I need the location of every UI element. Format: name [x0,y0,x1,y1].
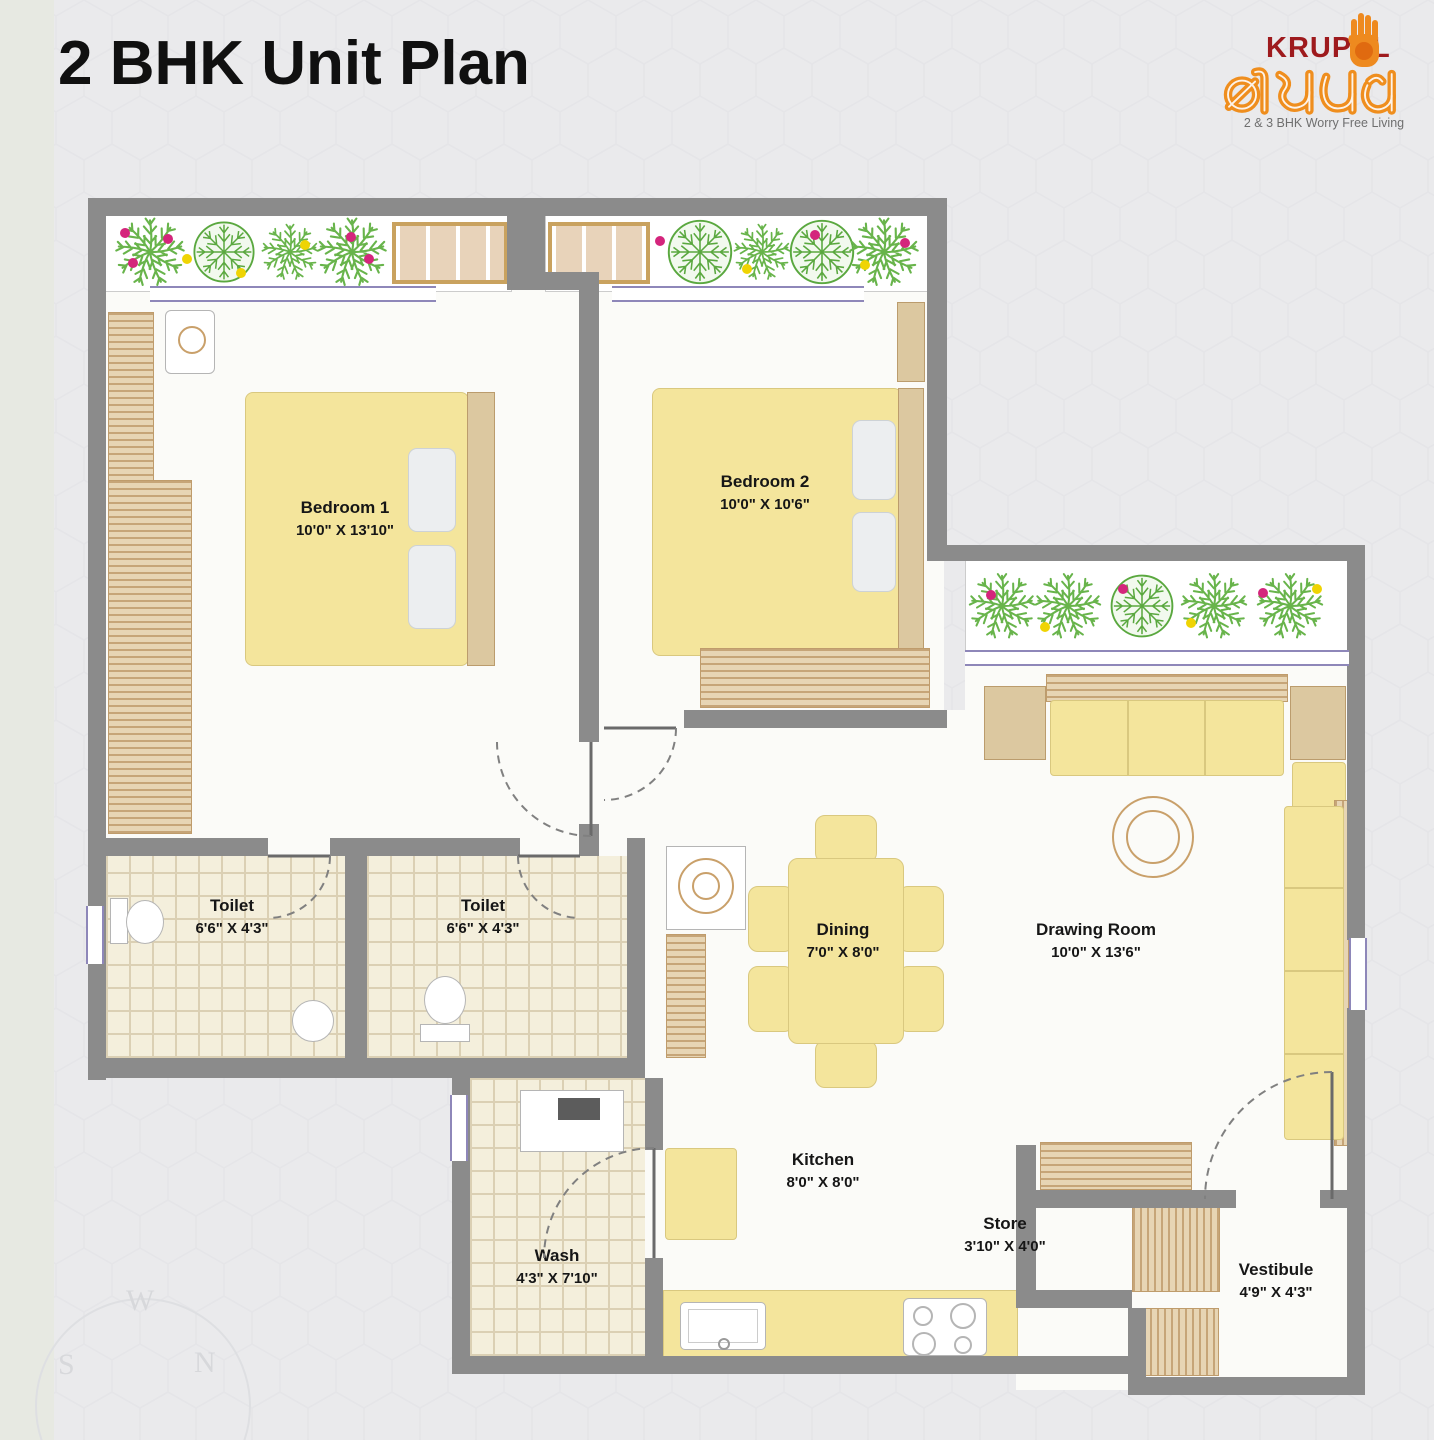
brand-tagline: 2 & 3 BHK Worry Free Living [1234,116,1414,130]
compass-letter-w: W [126,1284,154,1318]
window [86,906,104,964]
wall [627,838,645,1078]
flower-dot [300,240,310,250]
room-label-toilet-1: Toilet 6'6" X 4'3" [127,894,337,939]
window [965,650,1349,666]
tile-floor-toilet-2 [367,856,627,1058]
wall [1128,1308,1146,1377]
tree-icon [1104,568,1180,644]
wall [927,198,947,559]
dresser [897,302,925,382]
room-label-dining: Dining 7'0" X 8'0" [738,918,948,963]
wall [88,838,268,856]
room-label-vestibule: Vestibule 4'9" X 4'3" [1171,1258,1381,1303]
flower-dot [1186,618,1196,628]
flower-dot [742,264,752,274]
sofa-cushion-divider [1127,701,1129,775]
room-label-drawing-room: Drawing Room 10'0" X 13'6" [991,918,1201,963]
page-title: 2 BHK Unit Plan [58,28,530,99]
floor-plan-page: W S N 2 BHK Unit Plan KRUPAL [0,0,1434,1440]
plant-icon [1172,564,1256,648]
wall [645,1078,663,1150]
wash-basin [292,1000,334,1042]
plant-icon [1248,564,1332,648]
table-lamp-icon [178,326,206,354]
flower-dot [1312,584,1322,594]
burner-icon [950,1303,976,1329]
wall [88,1058,645,1078]
flower-dot [900,238,910,248]
flower-dot [182,254,192,264]
flower-dot [986,590,996,600]
wall [1347,1212,1365,1395]
wall [927,545,1365,561]
ac-ledge-left [392,222,508,284]
burner-icon [912,1332,936,1356]
flower-dot [364,254,374,264]
flower-dot [1258,588,1268,598]
sofa-back [1046,674,1288,702]
wall [579,290,599,742]
flower-dot [236,268,246,278]
pillow [408,545,456,629]
compass-letter-n: N [194,1346,216,1380]
wall [1036,1190,1236,1208]
cabinet-hatch [1135,1308,1219,1376]
brand-script [1216,60,1414,118]
room-label-store: Store 3'10" X 4'0" [900,1212,1110,1257]
sink-drain [718,1338,730,1350]
flower-dot [128,258,138,268]
flower-dot [810,230,820,240]
room-label-kitchen: Kitchen 8'0" X 8'0" [718,1148,928,1193]
tv-cabinet-hatch [1040,1142,1192,1190]
wc-tank [420,1024,470,1042]
wall [1128,1377,1365,1395]
sofa-cushion-divider [1285,887,1343,889]
wall [452,1356,1146,1374]
wall [507,272,599,290]
bed-headboard [467,392,495,666]
washing-machine-panel [558,1098,600,1120]
wc-bowl [424,976,466,1024]
wall [684,710,947,728]
wall [345,838,367,1060]
flower-dot [346,232,356,242]
long-sofa [1284,806,1344,1140]
wall [1347,1008,1365,1212]
pillow [852,512,896,592]
flower-dot [120,228,130,238]
sofa-cushion-divider [1285,1053,1343,1055]
compass-letter-s: S [58,1348,75,1382]
bed-headboard [898,388,924,656]
sofa-cushion-divider [1285,970,1343,972]
wall [580,838,599,856]
wardrobe-hatch [108,312,154,482]
sofa-cushion-divider [1204,701,1206,775]
end-table [1290,686,1346,760]
wardrobe-hatch [700,648,930,708]
wall [1320,1190,1349,1208]
dining-chair [898,966,944,1032]
flower-dot [860,260,870,270]
plant-icon [1026,564,1110,648]
duct-hatch [666,934,706,1058]
plant-icon [308,208,396,296]
window [150,286,436,302]
flower-dot [1040,622,1050,632]
background-left-strip [0,0,54,1440]
room-label-wash: Wash 4'3" X 7'10" [452,1244,662,1289]
wardrobe-hatch [108,480,192,834]
flower-dot [1118,584,1128,594]
sofa [1050,700,1284,776]
tree-icon [187,215,261,289]
dining-chair [815,1040,877,1088]
room-label-bedroom-1: Bedroom 1 10'0" X 13'10" [240,496,450,541]
window [450,1095,468,1161]
flower-dot [655,236,665,246]
wall [1347,672,1365,940]
flower-dot [163,234,173,244]
wall [1347,545,1365,672]
burner-icon [913,1306,933,1326]
end-table [984,686,1046,760]
coffee-table-inner [1126,810,1180,864]
room-label-bedroom-2: Bedroom 2 10'0" X 10'6" [660,470,870,515]
window [1349,938,1367,1010]
window [612,286,864,302]
plant-icon [840,208,928,296]
burner-icon [954,1336,972,1354]
plant-icon [106,208,194,296]
wall [330,838,520,856]
room-label-toilet-2: Toilet 6'6" X 4'3" [378,894,588,939]
wash-basin-inner [692,872,720,900]
wall [1016,1290,1132,1308]
dining-chair [815,815,877,863]
